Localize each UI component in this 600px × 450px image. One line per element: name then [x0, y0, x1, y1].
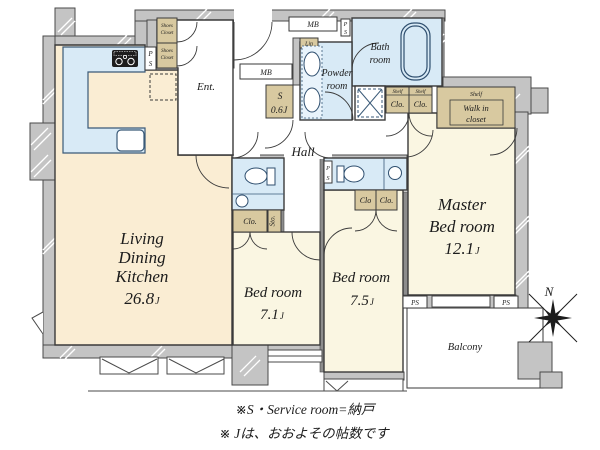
master-label-line2: Bed room — [429, 217, 495, 236]
floor-plan-page: Living Dining Kitchen 26.8J Bed room 7.1… — [0, 0, 600, 450]
shoes1-label-line2: Closet — [161, 31, 174, 36]
ldk-label-line2: Dining — [117, 248, 165, 267]
mb-label-top: MB — [306, 20, 319, 29]
ps-kitchen-s: S — [149, 60, 153, 68]
powder-label-line2: room — [327, 81, 348, 92]
ldk-label-line3: Kitchen — [115, 267, 169, 286]
ps-label-left: PS — [410, 299, 419, 307]
north-label: N — [544, 284, 555, 299]
ps-bath-p: P — [343, 22, 348, 28]
mb-label-mid: MB — [259, 68, 272, 77]
closet-bed2-left-label: Clo — [360, 196, 372, 205]
gas-stove — [112, 50, 138, 67]
wic-label-line2: closet — [466, 114, 486, 124]
closet-bed1-label: Clo. — [243, 217, 257, 226]
bath-label-line2: room — [370, 55, 391, 66]
shoes1-label-line1: Shoes — [161, 24, 173, 29]
closet-bed2-right-label: Clo. — [380, 196, 394, 205]
ps-toilet-p: P — [325, 166, 330, 172]
wic-label-line1: Walk in — [463, 103, 488, 113]
ps-bath-s: S — [344, 30, 347, 36]
shelf-closet-right-label: Clo. — [414, 100, 428, 109]
powder-vanity — [302, 46, 322, 118]
footnote-jou-unit: ※ Jは、おおよその帖数です — [219, 426, 390, 441]
ps-kitchen-p: P — [147, 50, 153, 58]
bath-label-line1: Bath — [371, 42, 390, 53]
entrance-label: Ent. — [196, 81, 215, 93]
bed1-label: Bed room — [244, 285, 302, 301]
floor-plan: Living Dining Kitchen 26.8J Bed room 7.1… — [0, 0, 600, 450]
shelf-right-label: Shelf — [416, 90, 427, 95]
footnote-service-room: ※S・Service room=納戸 — [236, 402, 377, 417]
service-room-label: S — [278, 92, 283, 102]
linen-label: Lin — [304, 42, 313, 48]
powder-label-line1: Powder — [320, 68, 352, 79]
storage-label: Sto. — [269, 215, 277, 226]
balcony-label: Balcony — [448, 342, 483, 353]
shoes2-label-line2: Closet — [161, 56, 174, 61]
bed2-label: Bed room — [332, 270, 390, 286]
ldk-label-line1: Living — [119, 229, 163, 248]
shelf-closet-left-label: Clo. — [391, 100, 405, 109]
kitchen-sink — [117, 130, 144, 151]
master-label-line1: Master — [437, 195, 487, 214]
room-bath — [352, 18, 442, 86]
ps-toilet-s: S — [327, 176, 330, 182]
hall-label: Hall — [290, 144, 315, 159]
shoes2-label-line1: Shoes — [161, 49, 173, 54]
ps-label-right: PS — [501, 299, 510, 307]
shelf-left-label: Shelf — [393, 90, 404, 95]
wic-shelf-label: Shelf — [470, 91, 483, 98]
service-room-area: 0.6J — [271, 105, 288, 116]
